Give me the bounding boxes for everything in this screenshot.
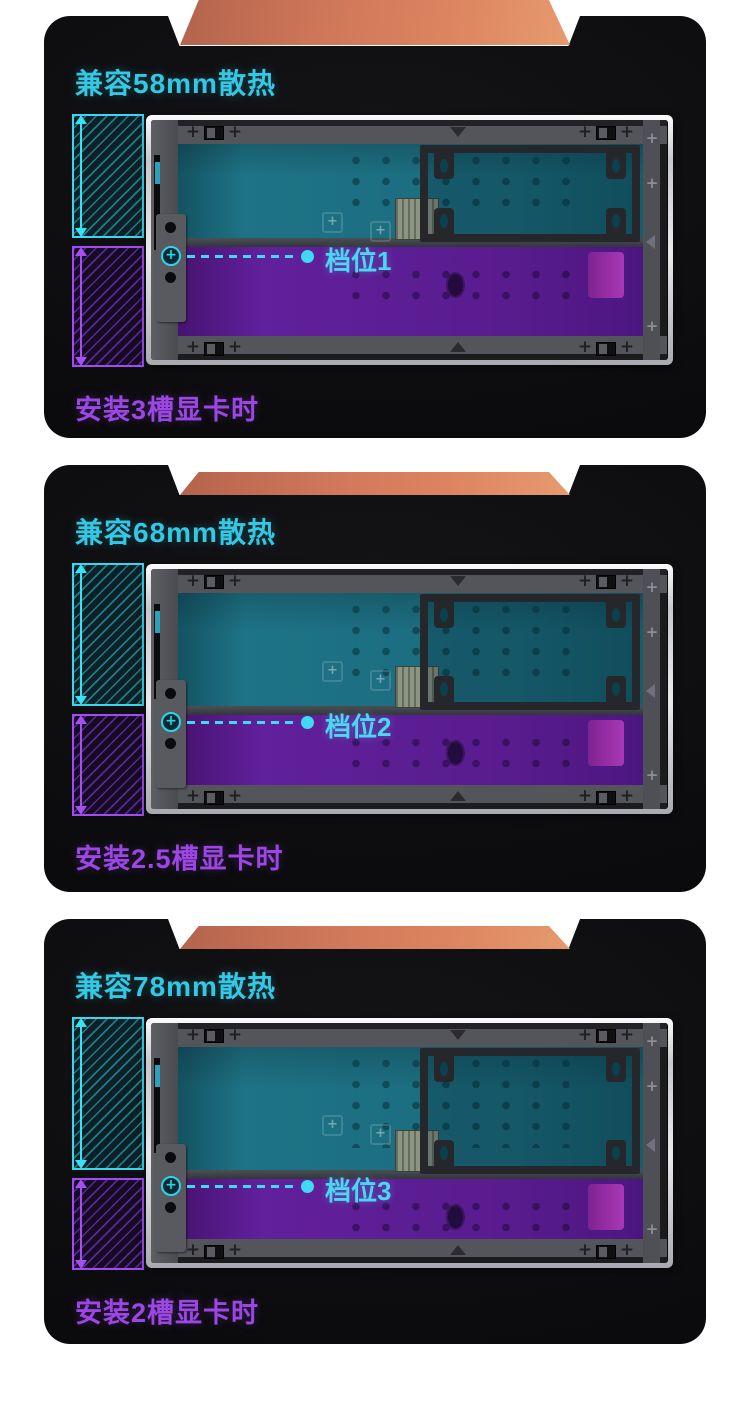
screw-icon: + (184, 122, 202, 142)
triangle-marker-icon (450, 1030, 466, 1040)
gpu-slot-arrow-icon (75, 1180, 87, 1268)
screw-icon: + (226, 122, 244, 142)
oval-hole (446, 272, 465, 298)
annotation-dot (301, 1180, 314, 1193)
cage-tab (606, 602, 626, 628)
gpu-cage-frame (420, 1048, 640, 1174)
rail-slot (204, 791, 224, 805)
triangle-marker-icon (450, 576, 466, 586)
screw-icon: + (576, 337, 594, 357)
case-interior: + + + + + + + + + + (151, 1023, 668, 1263)
case-photo: + + + + + + + + + + (146, 564, 673, 814)
panel-58mm-3slot: 兼容58mm散热 (0, 16, 750, 438)
gear-screw-icon: + (161, 246, 181, 266)
bracket-hole (165, 1152, 176, 1163)
screw-icon: + (644, 318, 660, 334)
bracket-hole (165, 272, 176, 283)
screw-icon: + (618, 122, 636, 142)
screw-plate: + (370, 221, 391, 242)
bracket-hole (165, 688, 176, 699)
bracket-hole (165, 1202, 176, 1213)
io-connector (155, 611, 160, 633)
rail-slot (596, 575, 616, 589)
screw-icon: + (576, 786, 594, 806)
gear-position-label: 档位1 (325, 241, 391, 278)
screw-icon: + (644, 1078, 660, 1094)
screw-icon: + (618, 1240, 636, 1260)
screw-icon: + (618, 786, 636, 806)
gpu-slot-arrow-icon (75, 716, 87, 814)
gear-position-label: 档位2 (325, 707, 391, 744)
screw-icon: + (644, 130, 660, 146)
cage-tab (434, 153, 454, 179)
case-interior: + + + + + + + + + + (151, 120, 668, 360)
rail-slot (204, 1029, 224, 1043)
screw-icon: + (618, 1025, 636, 1045)
cooler-clearance-box (72, 1017, 144, 1170)
cage-tab (434, 208, 454, 234)
cage-tab (606, 208, 626, 234)
bottom-rail: + + + + + (152, 1239, 667, 1263)
clearance-arrow-icon (75, 565, 87, 704)
rail-slot (596, 126, 616, 140)
screw-icon: + (226, 786, 244, 806)
cage-tab (434, 602, 454, 628)
screw-plate: + (370, 1124, 391, 1145)
io-connector (155, 162, 160, 184)
rail-slot (596, 1245, 616, 1259)
screw-icon: + (644, 1221, 660, 1237)
cage-tab (434, 676, 454, 702)
screw-icon: + (576, 1025, 594, 1045)
screw-icon: + (184, 337, 202, 357)
bracket-hole (165, 738, 176, 749)
panel-title: 兼容68mm散热 (75, 511, 276, 551)
screw-icon: + (226, 1240, 244, 1260)
triangle-marker-icon (450, 127, 466, 137)
triangle-marker-icon (450, 1245, 466, 1255)
card: 兼容58mm散热 (44, 16, 706, 438)
oval-hole (446, 1204, 465, 1230)
gear-screw-icon: + (161, 712, 181, 732)
magenta-component (588, 1184, 624, 1230)
annotation-dashed-line (187, 721, 297, 724)
magenta-component (588, 720, 624, 766)
annotation-dashed-line (187, 1185, 297, 1188)
annotation-dot (301, 716, 314, 729)
annotation-dot (301, 250, 314, 263)
panel-title: 兼容58mm散热 (75, 62, 276, 102)
screw-icon: + (184, 571, 202, 591)
gear-position-label: 档位3 (325, 1171, 391, 1208)
cooler-clearance-box (72, 563, 144, 706)
screw-icon: + (644, 1033, 660, 1049)
cage-tab (606, 153, 626, 179)
rail-slot (204, 342, 224, 356)
rail-slot (204, 126, 224, 140)
case-interior: + + + + + + + + + + (151, 569, 668, 809)
cage-tab (434, 1140, 454, 1166)
screw-icon: + (184, 1240, 202, 1260)
rail-slot (596, 1029, 616, 1043)
screw-icon: + (644, 579, 660, 595)
screw-plate: + (370, 670, 391, 691)
triangle-marker-icon (450, 791, 466, 801)
panel-title: 兼容78mm散热 (75, 965, 276, 1005)
oval-hole (446, 740, 465, 766)
magenta-component (588, 252, 624, 298)
gpu-cage-frame (420, 594, 640, 710)
screw-icon: + (576, 122, 594, 142)
screw-icon: + (644, 624, 660, 640)
case-top-cap (180, 926, 570, 949)
bottom-rail: + + + + + (152, 336, 667, 360)
gpu-slot-box (72, 246, 144, 367)
case-top-cap (180, 472, 570, 495)
screw-icon: + (644, 175, 660, 191)
top-rail: + + + + + (152, 120, 667, 144)
triangle-marker-icon (646, 235, 655, 249)
gpu-slot-arrow-icon (75, 248, 87, 365)
case-photo: + + + + + + + + + + (146, 115, 673, 365)
card: 兼容68mm散热 (44, 465, 706, 892)
io-connector (155, 1065, 160, 1087)
bottom-rail: + + + + + (152, 785, 667, 809)
screw-icon: + (576, 571, 594, 591)
cage-tab (606, 1140, 626, 1166)
screw-icon: + (644, 767, 660, 783)
gear-screw-icon: + (161, 1176, 181, 1196)
cooler-clearance-box (72, 114, 144, 238)
bottom-caption: 安装2.5槽显卡时 (75, 837, 284, 876)
screw-icon: + (226, 1025, 244, 1045)
cage-tab (606, 676, 626, 702)
screw-plate: + (322, 1115, 343, 1136)
bottom-caption: 安装3槽显卡时 (75, 388, 259, 427)
top-rail: + + + + + (152, 569, 667, 593)
rail-slot (204, 1245, 224, 1259)
panel-78mm-2slot: 兼容78mm散热 (0, 919, 750, 1344)
gpu-cage-frame (420, 145, 640, 242)
rail-slot (204, 575, 224, 589)
gpu-slot-box (72, 1178, 144, 1270)
bottom-caption: 安装2槽显卡时 (75, 1291, 259, 1330)
panel-68mm-2.5slot: 兼容68mm散热 (0, 465, 750, 892)
screw-icon: + (618, 571, 636, 591)
top-rail: + + + + + (152, 1023, 667, 1047)
rail-slot (596, 791, 616, 805)
screw-icon: + (226, 337, 244, 357)
cage-tab (606, 1056, 626, 1082)
triangle-marker-icon (450, 342, 466, 352)
screw-icon: + (184, 1025, 202, 1045)
screw-plate: + (322, 212, 343, 233)
screw-icon: + (576, 1240, 594, 1260)
gpu-slot-box (72, 714, 144, 816)
screw-icon: + (618, 337, 636, 357)
clearance-arrow-icon (75, 116, 87, 236)
case-top-cap (180, 0, 570, 45)
screw-icon: + (184, 786, 202, 806)
screw-icon: + (226, 571, 244, 591)
clearance-arrow-icon (75, 1019, 87, 1168)
bracket-hole (165, 222, 176, 233)
triangle-marker-icon (646, 1138, 655, 1152)
screw-plate: + (322, 661, 343, 682)
triangle-marker-icon (646, 684, 655, 698)
card: 兼容78mm散热 (44, 919, 706, 1344)
annotation-dashed-line (187, 255, 297, 258)
cage-tab (434, 1056, 454, 1082)
rail-slot (596, 342, 616, 356)
case-photo: + + + + + + + + + + (146, 1018, 673, 1268)
